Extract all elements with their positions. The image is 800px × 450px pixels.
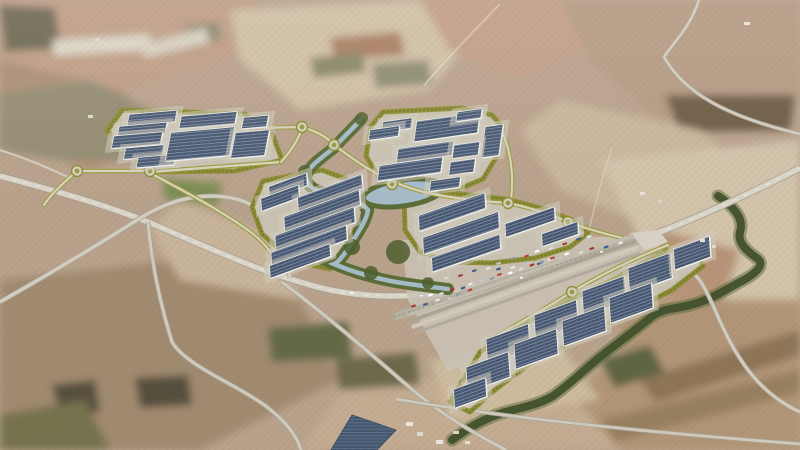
haze-overlay	[0, 0, 800, 450]
aerial-photo	[0, 0, 800, 450]
aerial-masterplan-render	[0, 0, 800, 450]
